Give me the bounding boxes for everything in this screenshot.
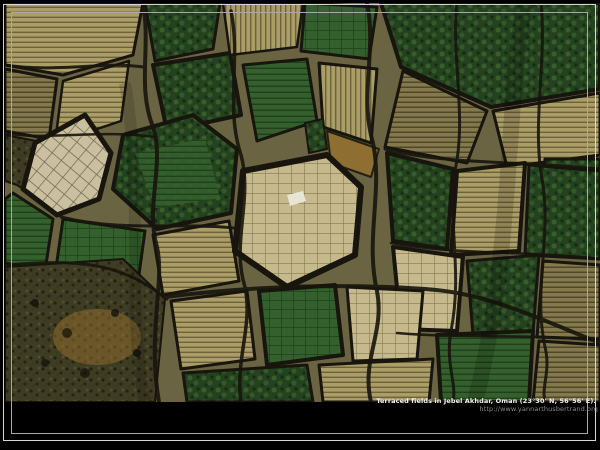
- photo-caption: Terraced fields in Jebel Akhdar, Oman (2…: [376, 398, 598, 413]
- aerial-photo: [5, 3, 600, 402]
- wallpaper-stage: Terraced fields in Jebel Akhdar, Oman (2…: [0, 0, 600, 450]
- aerial-photo-image: [5, 3, 600, 402]
- caption-url: http://www.yannarthusbertrand.org: [376, 406, 598, 414]
